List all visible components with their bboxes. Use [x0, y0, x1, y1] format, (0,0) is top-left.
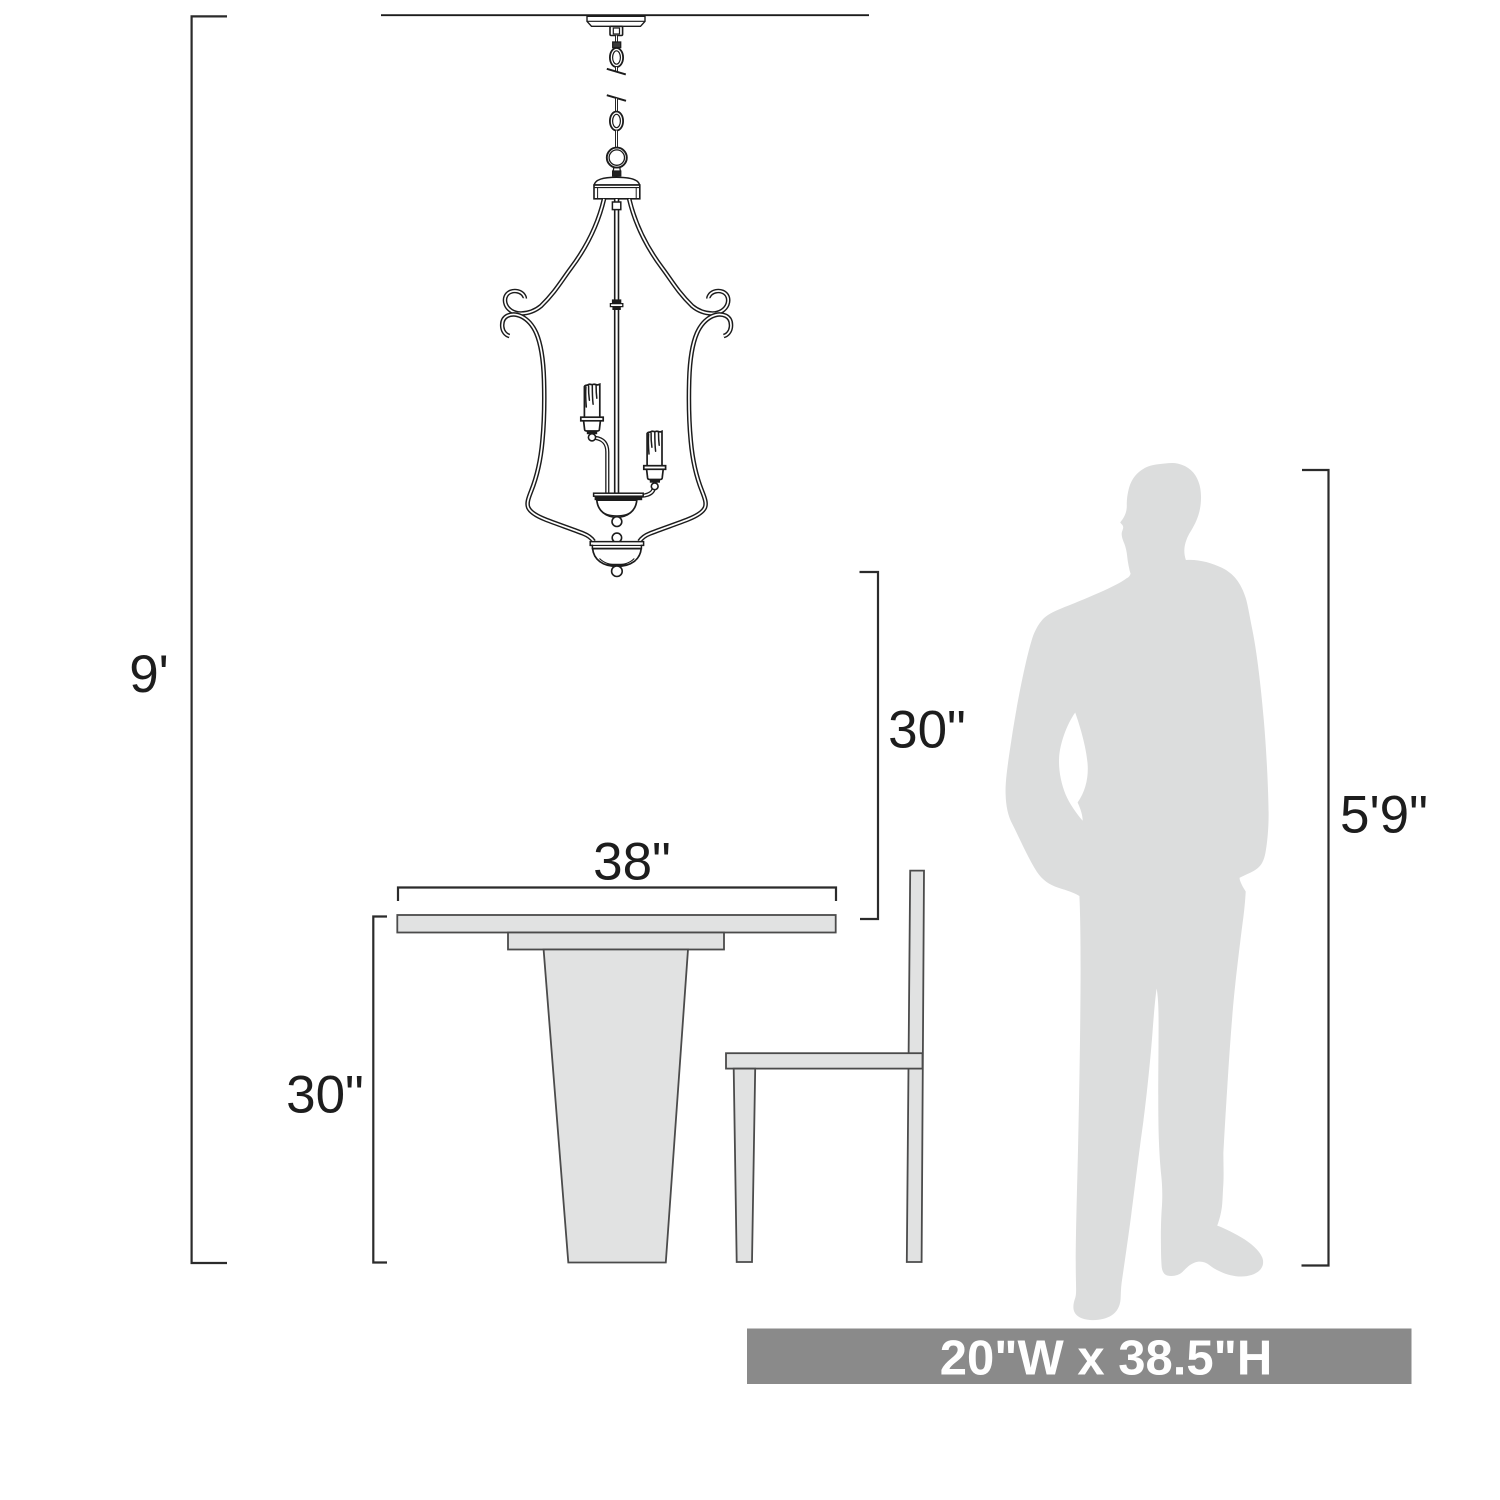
svg-text:20"W x 38.5"H: 20"W x 38.5"H — [940, 1332, 1272, 1386]
svg-text:30": 30" — [888, 701, 966, 760]
svg-text:9': 9' — [129, 645, 169, 704]
svg-text:38": 38" — [593, 833, 671, 892]
svg-text:30": 30" — [286, 1066, 364, 1125]
svg-text:5'9": 5'9" — [1340, 786, 1428, 845]
